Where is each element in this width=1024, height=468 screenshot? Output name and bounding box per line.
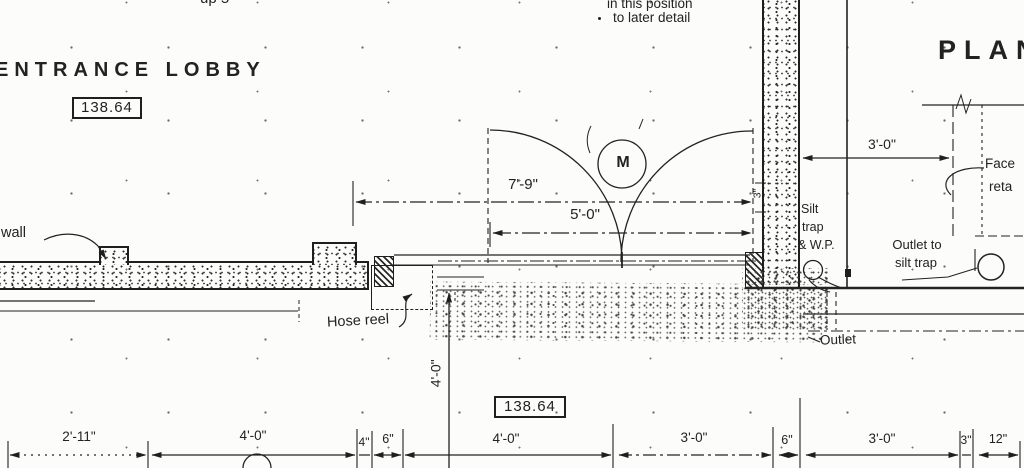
dim-door-opening xyxy=(353,181,751,226)
dim-label-door-opening: 7'-9" xyxy=(508,177,538,193)
threshold-lines xyxy=(394,255,756,302)
chain-label-3: 6" xyxy=(382,433,393,446)
architectural-plan-sheet: up 5 in this position to later detail EN… xyxy=(0,0,1024,468)
outlet-label: Outlet xyxy=(820,332,857,347)
up-note: up 5 xyxy=(200,0,229,7)
silt-trap-label-2: trap xyxy=(802,221,824,234)
hose-reel-label: Hose reel xyxy=(327,312,390,330)
chain-label-1: 4'-0" xyxy=(240,429,267,443)
dim-label-wall-offset: 3'-0" xyxy=(868,137,896,152)
chain-label-8: 3" xyxy=(961,434,972,447)
chain-label-0: 2'-11" xyxy=(62,430,95,444)
silt-trap-label-3: & W.P. xyxy=(798,239,835,252)
chain-label-9: 12" xyxy=(989,433,1007,446)
position-note-line2: to later detail xyxy=(613,11,690,25)
note-bullet xyxy=(598,17,601,20)
chain-label-6: 6" xyxy=(781,434,792,447)
silt-trap-label-1: Silt xyxy=(801,203,818,216)
face-label-1: Face xyxy=(985,157,1015,171)
dim-label-door-leaf: 5'-0" xyxy=(570,207,600,223)
manhole-arc xyxy=(243,454,271,468)
room-level-box: 138.64 xyxy=(72,97,142,119)
wall-label: wall xyxy=(1,226,26,241)
outlet-circle xyxy=(978,254,1004,280)
dim-label-wall-gap: 3" xyxy=(752,174,763,214)
ground-and-drainage-lines xyxy=(745,249,1024,331)
face-label-2: reta xyxy=(989,180,1012,194)
dim-label-apron-vertical: 4'-0" xyxy=(429,341,444,405)
outlet-to-label-1: Outlet to xyxy=(892,238,941,252)
door-mark-letter: M xyxy=(616,155,629,172)
room-title: ENTRANCE LOBBY xyxy=(0,60,266,81)
door-swing-arcs xyxy=(490,119,753,268)
plan-title: PLAN xyxy=(938,36,1024,64)
floor-level-box: 138.64 xyxy=(494,396,566,418)
chain-label-4: 4'-0" xyxy=(493,432,520,446)
silt-trap-circle xyxy=(804,261,823,280)
chain-label-5: 3'-0" xyxy=(681,431,708,445)
chain-label-2: 4" xyxy=(359,436,370,449)
outlet-to-label-2: silt trap xyxy=(895,256,937,270)
chain-label-7: 3'-0" xyxy=(869,432,896,446)
